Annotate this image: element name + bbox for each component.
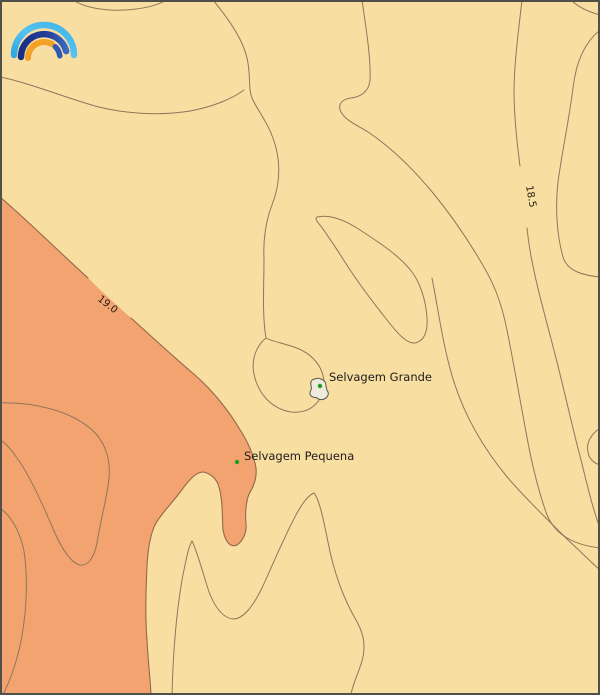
- marker-selvagem-grande: [318, 384, 322, 388]
- label-selvagem-pequena: Selvagem Pequena: [244, 449, 354, 463]
- marker-selvagem-pequena: [235, 460, 239, 464]
- map-canvas: 19.0 18.5 Selvagem Grande Selvagem Peque…: [0, 0, 600, 695]
- label-selvagem-grande: Selvagem Grande: [329, 370, 432, 384]
- weather-map: 19.0 18.5 Selvagem Grande Selvagem Peque…: [0, 0, 600, 695]
